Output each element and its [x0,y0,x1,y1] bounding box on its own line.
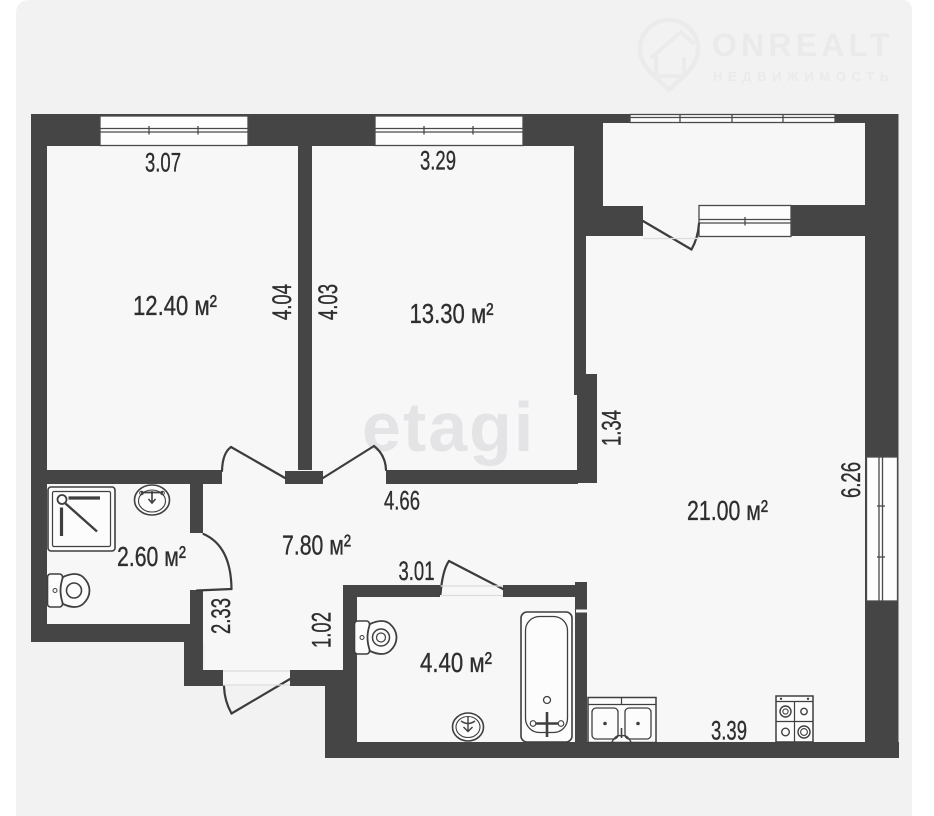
svg-text:ONREALT: ONREALT [712,27,894,63]
svg-text:12.40 м²: 12.40 м² [133,290,217,321]
svg-text:4.40 м²: 4.40 м² [420,647,492,678]
svg-text:7.80 м²: 7.80 м² [282,530,351,561]
svg-text:3.07: 3.07 [145,148,181,178]
svg-text:3.29: 3.29 [420,146,456,176]
svg-text:6.26: 6.26 [836,462,866,498]
svg-text:etagi: etagi [362,388,535,466]
svg-text:21.00 м²: 21.00 м² [687,495,768,526]
svg-text:1.02: 1.02 [307,612,337,648]
svg-text:3.39: 3.39 [711,716,747,746]
svg-text:1.34: 1.34 [597,410,627,446]
svg-text:13.30 м²: 13.30 м² [410,298,494,329]
svg-text:4.04: 4.04 [267,284,297,320]
svg-text:2.33: 2.33 [206,598,236,634]
svg-text:3.01: 3.01 [399,556,435,586]
svg-text:4.66: 4.66 [384,486,420,516]
svg-text:4.03: 4.03 [313,284,343,320]
svg-text:НЕДВИЖИМОСТЬ: НЕДВИЖИМОСТЬ [713,69,895,84]
svg-text:2.60 м²: 2.60 м² [117,541,186,572]
